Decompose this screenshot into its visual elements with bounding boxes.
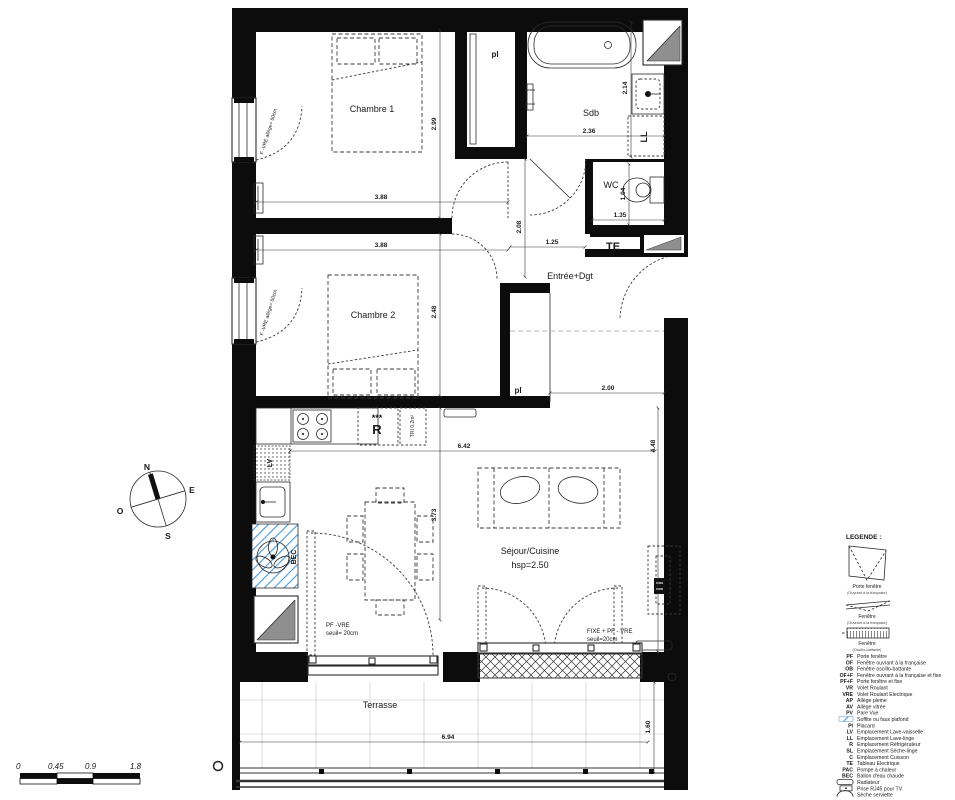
- cooktop-icon: [293, 410, 331, 442]
- plan-label: Chambre 1: [350, 104, 395, 114]
- plan-label: LL: [639, 131, 649, 142]
- legend-item-abbr: PV: [846, 711, 853, 717]
- dim-label: 2.48: [431, 305, 438, 318]
- plan-label: Sdb: [583, 108, 599, 118]
- bed-chambre1: [332, 34, 422, 152]
- plan-label: Séjour/Cuisine: [501, 546, 560, 556]
- legend-item-label: Emplacement Sèche-linge: [857, 749, 918, 755]
- terrace: [214, 673, 677, 790]
- legend-item-abbr: SL: [846, 749, 853, 755]
- plan-label: pl: [491, 50, 498, 59]
- dining-table: [347, 488, 433, 615]
- legend-item-label: Radiateur: [857, 780, 880, 786]
- legend-item-label: Fenêtre oscillo-battante: [857, 667, 911, 673]
- plan-label: TE: [606, 241, 620, 253]
- legend-symbol-label: Fenêtre: [858, 641, 875, 647]
- legend-item-abbr: OF+F: [840, 673, 853, 679]
- plan-label: pl: [514, 386, 521, 395]
- floor-plan-canvas: 3.883.882.992.483.732.362.141.041.351.25…: [0, 0, 955, 800]
- sofa: [478, 468, 620, 528]
- drain-mark: [214, 762, 223, 771]
- legend-item-abbr: LV: [847, 730, 854, 736]
- legend-symbol-sub: (Ouvrant à la française): [847, 621, 887, 625]
- dim-label: 1.25: [546, 239, 559, 246]
- dim-label: 1.35: [614, 212, 627, 219]
- dim-label: 2.14: [622, 81, 629, 94]
- legend-item-label: Volet Roulant Electrique: [857, 692, 912, 698]
- kitchen-counter: [256, 408, 378, 444]
- plan-labels: Chambre 1Chambre 2SdbWCEntrée+DgtSéjour/…: [259, 50, 649, 710]
- legend-item-label: Tableau Electrique: [857, 761, 900, 767]
- plan-label: PF -VRE: [326, 623, 350, 629]
- soffite-swatch-icon: [839, 717, 853, 722]
- dim-label: 3.88: [375, 242, 388, 249]
- plan-label: seuil= 20cm: [326, 631, 358, 637]
- legend-item-abbr: BEC: [842, 774, 853, 780]
- legend-item-label: Emplacement Réfrigérateur: [857, 742, 921, 748]
- legend-item-label: Porte fenêtre: [857, 654, 887, 660]
- legend-item-label: Emplacement Cuisson: [857, 755, 909, 761]
- plan-label: LV: [267, 458, 274, 467]
- dim-label: 2.08: [516, 220, 523, 233]
- compass-rose: N E S O: [117, 462, 195, 541]
- legend-item-abbr: PF+F: [840, 679, 853, 685]
- legend-item-label: Volet Roulant: [857, 686, 888, 692]
- plan-label: seuil=20cm: [587, 637, 618, 643]
- legend-item-label: Prise RJ45 pour TV: [857, 786, 903, 792]
- dim-label: 1.60: [645, 720, 652, 733]
- closet-entry: [510, 293, 664, 402]
- legend-symbol-label: Porte fenêtre: [853, 584, 882, 590]
- legend-item-abbr: VRE: [842, 692, 853, 698]
- legend-item-abbr: PF: [846, 654, 853, 660]
- dim-label: 3.88: [375, 194, 388, 201]
- legend-item-label: Emplacement Lave-linge: [857, 736, 914, 742]
- legend-symbol-label: Fenêtre: [858, 614, 875, 620]
- plan-label: ***: [372, 413, 383, 423]
- legend-title: LEGENDE :: [846, 534, 881, 541]
- scale-tick-3: 1.8: [130, 762, 142, 771]
- legend-item-abbr: AV: [846, 704, 853, 710]
- scale-bar: 0 0.45 0.9 1.8: [16, 762, 142, 784]
- shaft-icon-bottom: [254, 596, 298, 643]
- radiator-kitchen: [444, 409, 476, 417]
- dim-label: 2.00: [602, 385, 615, 392]
- legend-item-abbr: TE: [846, 761, 853, 767]
- legend-item-label: Pare Vue: [857, 711, 879, 717]
- plan-label: Chambre 2: [351, 310, 396, 320]
- plan-label: F -VRE allège= 60cm: [259, 289, 279, 336]
- legend-item-label: Ballon d'eau chaude: [857, 774, 904, 780]
- legend-item-abbr: OB: [845, 667, 853, 673]
- scale-tick-2: 0.9: [85, 762, 97, 771]
- legend-item-abbr: VR: [846, 686, 853, 692]
- legend-item-label: Fenêtre ouvrant à la française et fixe: [857, 673, 941, 679]
- legend-item-label: Placard: [857, 723, 875, 729]
- legend-symbol-porte-fenetre-icon: [849, 546, 886, 580]
- legend-item-abbr: Pl: [848, 723, 853, 729]
- compass-o: O: [117, 506, 124, 516]
- dim-label: 6.42: [458, 443, 471, 450]
- legend-item-label: Pompe à chaleur: [857, 767, 896, 773]
- compass-e: E: [189, 485, 195, 495]
- legend-list: PFPorte fenêtreOFFenêtre ouvrant à la fr…: [837, 654, 941, 799]
- legend-item-label: Fenêtre ouvrant à la française: [857, 660, 926, 666]
- legend-symbol-sub: (Oscillo-battante): [853, 648, 883, 652]
- dim-label: 2.36: [583, 128, 596, 135]
- fixed-bay-window: [478, 643, 642, 678]
- legend-item-abbr: PAC: [842, 767, 853, 773]
- rj45-icon-dot: [845, 787, 847, 789]
- dim-label: 4.48: [650, 439, 657, 452]
- scale-tick-0: 0: [16, 762, 21, 771]
- legend-symbol-fenetre-icon: [846, 601, 890, 611]
- shaft-icon-top: [643, 20, 682, 65]
- towel-dryer-legend-icon: [837, 791, 853, 797]
- legend-item-abbr: OF: [846, 660, 853, 666]
- legend-symbol-sub: (Ouvrant à la française): [847, 591, 887, 595]
- plan-label: FIXE + PF - VRE: [587, 629, 633, 635]
- plan-label: BEC: [291, 550, 298, 565]
- plan-label: Terrasse: [363, 700, 398, 710]
- plan-label: TRI 0.2m²: [410, 415, 416, 438]
- plan-label: WC: [604, 180, 619, 190]
- floor-plan-page: 3.883.882.992.483.732.362.141.041.351.25…: [0, 0, 955, 800]
- legend-item-label: Sèche serviette: [857, 793, 893, 799]
- plan-label: hsp=2.50: [511, 560, 548, 570]
- legend-item-label: Porte fenêtre et fixe: [857, 679, 902, 685]
- bed-chambre2: [328, 275, 418, 398]
- radiator-icon: [837, 780, 853, 785]
- legend-item-label: Allège vitrée: [857, 704, 886, 710]
- compass-s: S: [165, 531, 171, 541]
- legend-item-label: Emplacement Lave-vaisselle: [857, 730, 923, 736]
- legend-item-abbr: R: [849, 742, 853, 748]
- legend-symbol-oscillo-icon: [842, 628, 889, 638]
- legend-item-abbr: AP: [846, 698, 854, 704]
- legend-item-label: Soffite ou faux plafond: [857, 717, 909, 723]
- legend-item-abbr: C: [849, 755, 853, 761]
- compass-n: N: [144, 462, 150, 472]
- plan-label: R: [372, 422, 382, 437]
- dim-label: 2.99: [431, 117, 438, 130]
- dim-label: 3.73: [431, 508, 438, 521]
- scale-tick-1: 0.45: [48, 762, 64, 771]
- closet-top: [470, 34, 476, 144]
- dim-label: 1.04: [620, 187, 627, 200]
- sink-icon: [256, 482, 290, 522]
- electrical-panel: [640, 231, 688, 257]
- plan-label: Entrée+Dgt: [547, 271, 593, 281]
- plan-label: F -VRE allège= 60cm: [259, 108, 279, 155]
- dim-label: 6.94: [442, 734, 455, 741]
- legend: LEGENDE : Porte fenêtre (Ouvrant à la fr…: [837, 534, 941, 799]
- washbasin-icon: [632, 74, 664, 114]
- legend-item-abbr: LL: [847, 736, 854, 742]
- french-window-sill: [308, 656, 438, 675]
- legend-item-label: Allège pleine: [857, 698, 887, 704]
